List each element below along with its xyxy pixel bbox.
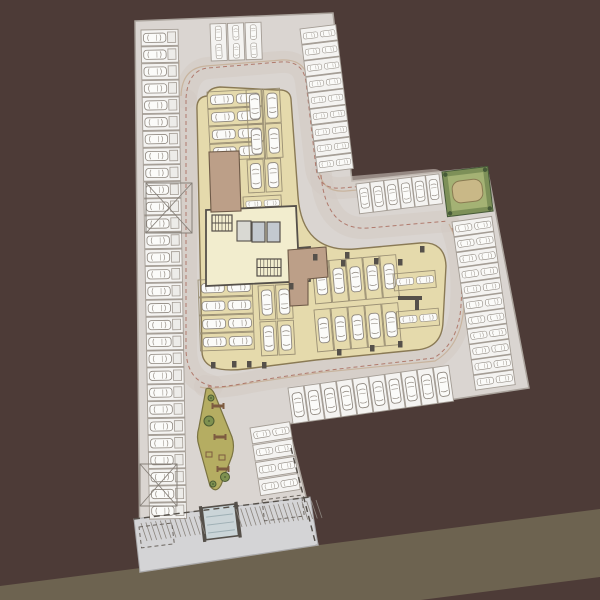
column-post bbox=[262, 362, 267, 369]
car-icon bbox=[144, 67, 167, 77]
car-icon bbox=[228, 318, 251, 328]
elevator-shaft bbox=[252, 222, 265, 242]
stair bbox=[212, 215, 232, 231]
car-icon bbox=[268, 128, 279, 153]
tree-icon bbox=[208, 395, 214, 401]
car-icon bbox=[143, 33, 166, 43]
stall-locker bbox=[173, 319, 181, 330]
car-icon bbox=[250, 25, 256, 40]
car-icon bbox=[148, 303, 171, 313]
car-icon bbox=[350, 266, 362, 292]
car-icon bbox=[264, 199, 280, 206]
car-icon bbox=[420, 313, 438, 322]
parking-bank-left-bank bbox=[141, 29, 187, 519]
car-icon bbox=[152, 506, 175, 516]
car-icon bbox=[229, 336, 252, 346]
car-icon bbox=[210, 94, 233, 104]
car-icon bbox=[233, 25, 239, 40]
car-icon bbox=[145, 101, 168, 111]
car-icon bbox=[267, 93, 278, 118]
car-icon bbox=[147, 270, 170, 280]
car-icon bbox=[152, 506, 175, 516]
car-icon bbox=[368, 313, 380, 339]
car-icon bbox=[150, 439, 173, 449]
bench-end bbox=[223, 403, 225, 409]
stall-locker bbox=[171, 218, 179, 229]
car-icon bbox=[261, 290, 272, 315]
car-icon bbox=[251, 129, 262, 154]
car-icon bbox=[143, 33, 166, 43]
stall-locker bbox=[174, 421, 182, 432]
car-icon bbox=[148, 320, 171, 330]
car-icon bbox=[281, 325, 292, 350]
car-icon bbox=[147, 236, 170, 246]
car-icon bbox=[145, 151, 168, 161]
car-icon bbox=[211, 112, 234, 122]
tree-trunk bbox=[210, 397, 212, 399]
car-icon bbox=[399, 315, 417, 324]
column-post bbox=[341, 260, 346, 267]
car-icon bbox=[318, 317, 330, 343]
bench-end bbox=[214, 434, 216, 440]
car-icon bbox=[150, 405, 173, 415]
car-icon bbox=[150, 422, 173, 432]
car-icon bbox=[145, 134, 168, 144]
car-icon bbox=[263, 326, 274, 351]
car-icon bbox=[146, 168, 169, 178]
car-icon bbox=[145, 117, 168, 127]
stall-locker bbox=[168, 83, 176, 94]
car-icon bbox=[212, 129, 235, 139]
bench-end bbox=[225, 434, 227, 440]
stall-locker bbox=[173, 353, 181, 364]
stall-locker bbox=[175, 454, 183, 465]
car-icon bbox=[261, 290, 272, 315]
car-icon bbox=[268, 128, 279, 153]
wall-segment bbox=[415, 299, 419, 310]
car-icon bbox=[149, 371, 172, 381]
stall-locker bbox=[171, 252, 179, 263]
car-icon bbox=[333, 268, 345, 294]
car-icon bbox=[233, 44, 239, 59]
car-icon bbox=[144, 84, 167, 94]
car-icon bbox=[264, 199, 280, 206]
car-icon bbox=[146, 168, 169, 178]
green-court bbox=[442, 166, 493, 216]
car-icon bbox=[151, 489, 174, 499]
car-icon bbox=[396, 277, 414, 286]
column-post bbox=[337, 349, 342, 356]
car-icon bbox=[202, 301, 225, 311]
car-icon bbox=[250, 25, 256, 40]
car-icon bbox=[202, 301, 225, 311]
tree-trunk bbox=[208, 420, 210, 422]
car-icon bbox=[147, 253, 170, 263]
site-plan-svg: Underground parking level floor plan bbox=[0, 0, 600, 600]
car-icon bbox=[216, 44, 222, 59]
car-icon bbox=[251, 129, 262, 154]
tree-icon bbox=[221, 473, 230, 482]
car-icon bbox=[250, 163, 261, 188]
stall-locker bbox=[168, 66, 176, 77]
car-icon bbox=[249, 94, 260, 119]
car-icon bbox=[366, 265, 378, 291]
stall-locker bbox=[168, 32, 176, 43]
car-icon bbox=[215, 26, 221, 41]
car-icon bbox=[149, 354, 172, 364]
car-icon bbox=[151, 489, 174, 499]
car-icon bbox=[335, 316, 347, 342]
car-icon bbox=[250, 163, 261, 188]
column-post bbox=[289, 283, 294, 290]
stall-locker bbox=[174, 387, 182, 398]
car-icon bbox=[150, 388, 173, 398]
stall-locker bbox=[168, 49, 176, 60]
bench-seat bbox=[215, 436, 225, 439]
car-icon bbox=[228, 300, 251, 310]
stall-locker bbox=[173, 336, 181, 347]
car-icon bbox=[210, 94, 233, 104]
bench-seat bbox=[218, 468, 228, 471]
car-icon bbox=[249, 94, 260, 119]
parking-floor-plan: Underground parking level floor plan Und… bbox=[0, 0, 600, 600]
car-icon bbox=[335, 316, 347, 342]
bench-end bbox=[228, 466, 230, 472]
stall-locker bbox=[169, 116, 177, 127]
stall-locker bbox=[172, 268, 180, 279]
stall-locker bbox=[173, 370, 181, 381]
bench-end bbox=[217, 466, 219, 472]
tree-trunk bbox=[212, 483, 214, 485]
stall-locker bbox=[172, 285, 180, 296]
car-icon bbox=[203, 337, 226, 347]
elevator-shaft bbox=[267, 222, 280, 242]
utility-shaft bbox=[237, 221, 251, 241]
column-post bbox=[232, 361, 237, 368]
car-icon bbox=[233, 25, 239, 40]
car-icon bbox=[203, 319, 226, 329]
car-icon bbox=[147, 236, 170, 246]
car-icon bbox=[228, 300, 251, 310]
car-icon bbox=[203, 319, 226, 329]
car-icon bbox=[396, 277, 414, 286]
stall-locker bbox=[172, 302, 180, 313]
car-icon bbox=[146, 202, 169, 212]
car-icon bbox=[149, 337, 172, 347]
car-icon bbox=[281, 325, 292, 350]
car-icon bbox=[385, 311, 397, 337]
car-icon bbox=[366, 265, 378, 291]
car-icon bbox=[144, 84, 167, 94]
ramp-entry bbox=[199, 502, 242, 542]
car-icon bbox=[268, 162, 279, 187]
stall-locker bbox=[175, 471, 183, 482]
stair bbox=[257, 259, 281, 276]
car-icon bbox=[212, 129, 235, 139]
car-icon bbox=[251, 43, 257, 58]
car-icon bbox=[228, 318, 251, 328]
car-icon bbox=[233, 44, 239, 59]
car-icon bbox=[352, 314, 364, 340]
car-icon bbox=[268, 162, 279, 187]
tree-icon bbox=[204, 416, 214, 426]
car-icon bbox=[246, 200, 262, 207]
car-icon bbox=[216, 44, 222, 59]
tree-icon bbox=[210, 481, 216, 487]
bench-end bbox=[212, 403, 214, 409]
car-icon bbox=[148, 286, 171, 296]
car-icon bbox=[318, 317, 330, 343]
car-icon bbox=[368, 313, 380, 339]
car-icon bbox=[149, 337, 172, 347]
car-icon bbox=[416, 275, 434, 284]
car-icon bbox=[147, 270, 170, 280]
car-icon bbox=[399, 315, 417, 324]
car-icon bbox=[420, 313, 438, 322]
car-icon bbox=[145, 101, 168, 111]
car-icon bbox=[333, 268, 345, 294]
car-icon bbox=[144, 50, 167, 60]
column-post bbox=[345, 252, 350, 259]
stall-locker bbox=[170, 150, 178, 161]
car-icon bbox=[267, 93, 278, 118]
stall-locker bbox=[175, 437, 183, 448]
bench-seat bbox=[213, 405, 223, 408]
parking-bank-top-bank bbox=[210, 22, 262, 61]
car-icon bbox=[145, 151, 168, 161]
car-icon bbox=[150, 388, 173, 398]
car-icon bbox=[148, 320, 171, 330]
car-icon bbox=[145, 117, 168, 127]
column-post bbox=[211, 362, 216, 369]
car-icon bbox=[279, 289, 290, 314]
car-icon bbox=[215, 26, 221, 41]
stall-locker bbox=[169, 133, 177, 144]
service-room bbox=[209, 151, 241, 212]
car-icon bbox=[147, 253, 170, 263]
car-icon bbox=[150, 422, 173, 432]
stall-locker bbox=[171, 235, 179, 246]
column-post bbox=[420, 246, 425, 253]
car-icon bbox=[385, 311, 397, 337]
car-icon bbox=[144, 50, 167, 60]
stall-locker bbox=[170, 184, 178, 195]
car-icon bbox=[246, 200, 262, 207]
car-icon bbox=[263, 326, 274, 351]
car-icon bbox=[144, 67, 167, 77]
car-icon bbox=[148, 303, 171, 313]
stall-locker bbox=[174, 404, 182, 415]
car-icon bbox=[279, 289, 290, 314]
car-icon bbox=[149, 371, 172, 381]
car-icon bbox=[148, 286, 171, 296]
car-icon bbox=[150, 439, 173, 449]
car-icon bbox=[251, 43, 257, 58]
lawn-pad bbox=[451, 178, 483, 203]
column-post bbox=[374, 258, 379, 265]
stall-locker bbox=[170, 167, 178, 178]
car-icon bbox=[149, 354, 172, 364]
car-icon bbox=[350, 266, 362, 292]
column-post bbox=[313, 254, 318, 261]
plan-layers bbox=[0, 0, 600, 600]
car-icon bbox=[203, 337, 226, 347]
car-icon bbox=[229, 336, 252, 346]
column-post bbox=[398, 259, 403, 266]
car-icon bbox=[150, 405, 173, 415]
column-post bbox=[398, 341, 403, 348]
car-icon bbox=[352, 314, 364, 340]
column-post bbox=[247, 361, 252, 368]
car-icon bbox=[211, 112, 234, 122]
column-post bbox=[370, 345, 375, 352]
stall-locker bbox=[169, 99, 177, 110]
car-icon bbox=[145, 134, 168, 144]
car-icon bbox=[416, 275, 434, 284]
tree-trunk bbox=[224, 476, 226, 478]
car-icon bbox=[146, 202, 169, 212]
